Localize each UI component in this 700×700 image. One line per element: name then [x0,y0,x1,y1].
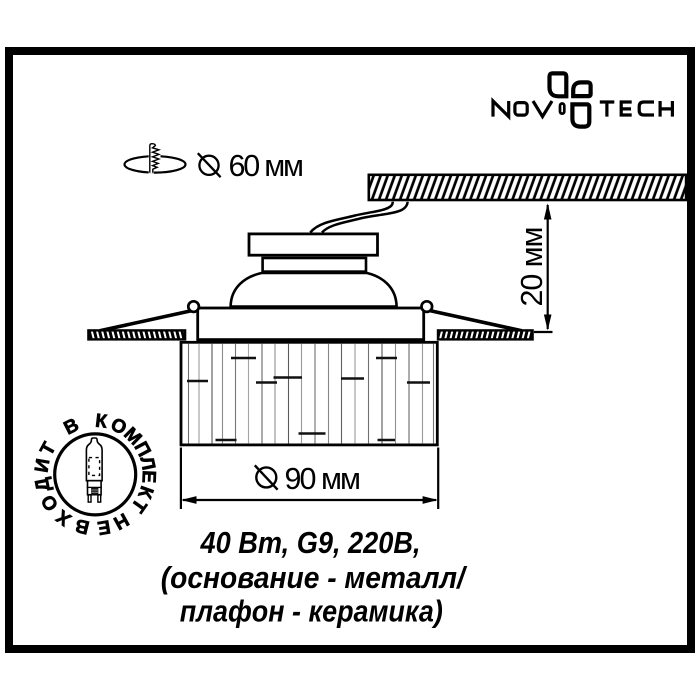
svg-text:Е: Е [137,470,159,484]
svg-text:90 мм: 90 мм [285,462,362,496]
svg-text:40 Вт, G9, 220В,: 40 Вт, G9, 220В, [200,526,421,560]
svg-text:плафон - керамика): плафон - керамика) [180,594,443,628]
svg-text:20 мм: 20 мм [515,227,549,307]
svg-text:(основание - металл/: (основание - металл/ [161,561,468,595]
svg-text:60 мм: 60 мм [229,149,305,183]
